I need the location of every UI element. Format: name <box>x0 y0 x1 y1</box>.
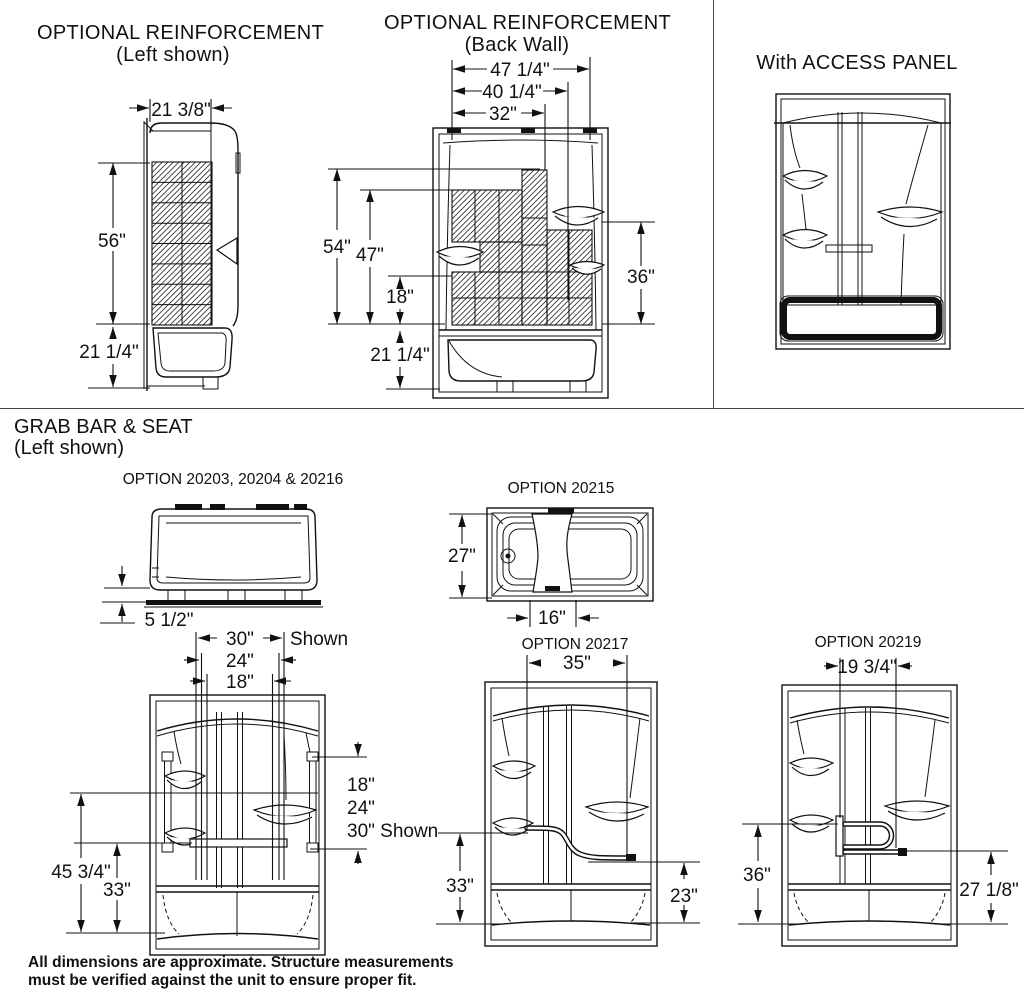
spec-sheet-page: OPTIONAL REINFORCEMENT (Left shown) OPTI… <box>0 0 1024 1007</box>
dim-20215-seat-width: 16" <box>538 608 566 629</box>
dim-back-height-tub: 21 1/4" <box>370 345 430 366</box>
dim-20217-right-height: 23" <box>670 886 698 907</box>
dim-elev-top-18: 18" <box>226 672 254 693</box>
dim-20217-left-height: 33" <box>446 876 474 897</box>
dim-elev-height-main: 45 3/4" <box>51 862 111 883</box>
dim-back-height-right: 36" <box>627 267 655 288</box>
dim-elev-shown-label: Shown <box>290 629 348 650</box>
side-view-drawing <box>144 118 240 391</box>
dim-back-width-outer: 47 1/4" <box>490 60 550 81</box>
access-panel-drawing <box>774 94 951 349</box>
dim-20217-width: 35" <box>563 653 591 674</box>
topview-20203-drawing <box>144 504 323 607</box>
elevation-dimensions: 30" Shown 24" 18" 18" 24" 30" Shown 45 3… <box>51 629 438 933</box>
dim-elev-top-30: 30" <box>226 629 254 650</box>
dim-20219-right-height: 27 1/8" <box>959 880 1019 901</box>
elevation-drawing <box>150 695 325 955</box>
dim-20203-apron-height: 5 1/2" <box>144 610 193 631</box>
dim-back-height-wall: 47" <box>356 245 384 266</box>
dim-back-height-lower: 18" <box>386 287 414 308</box>
dim-20215-depth: 27" <box>448 546 476 567</box>
dim-20219-left-height: 36" <box>743 865 771 886</box>
dim-elev-side-18: 18" <box>347 775 375 796</box>
dim-20219-width: 19 3/4" <box>837 657 897 678</box>
dim-back-height-full: 54" <box>323 237 351 258</box>
option-20219-drawing <box>782 685 957 946</box>
dim-elev-side-24: 24" <box>347 798 375 819</box>
dim-left-wall-height: 56" <box>98 231 126 252</box>
topview-20203-dimensions: 5 1/2" <box>100 566 194 631</box>
option-20217-drawing <box>485 682 657 946</box>
technical-drawing-canvas: 21 3/8" 56" 21 1/4" <box>0 0 1024 1007</box>
dim-elev-height-inner: 33" <box>103 880 131 901</box>
dim-left-width: 21 3/8" <box>151 100 211 121</box>
dim-elev-top-24: 24" <box>226 651 254 672</box>
topview-20215-dimensions: 27" 16" <box>448 514 599 629</box>
topview-20215-drawing <box>487 508 653 601</box>
dim-back-width-mid: 40 1/4" <box>482 82 542 103</box>
dim-elev-side-30-shown: 30" Shown <box>347 821 438 842</box>
dim-back-width-inner: 32" <box>489 104 517 125</box>
dim-left-tub-height: 21 1/4" <box>79 342 139 363</box>
